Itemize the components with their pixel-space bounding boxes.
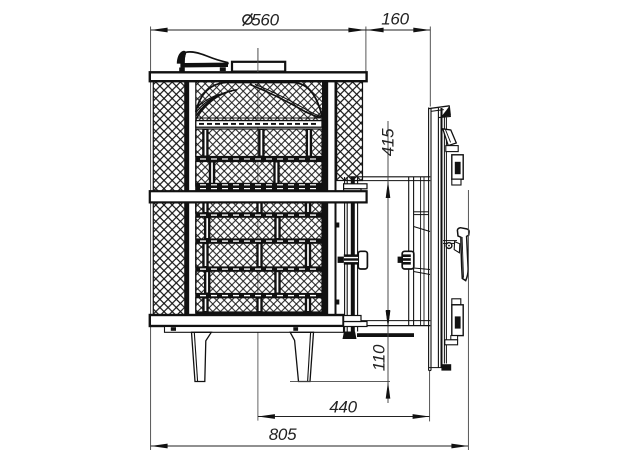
svg-text:110: 110 — [370, 344, 389, 371]
svg-text:415: 415 — [379, 128, 398, 156]
svg-text:440: 440 — [329, 398, 357, 417]
svg-text:805: 805 — [269, 425, 297, 444]
svg-text:160: 160 — [381, 10, 409, 29]
svg-text:560: 560 — [251, 11, 279, 30]
